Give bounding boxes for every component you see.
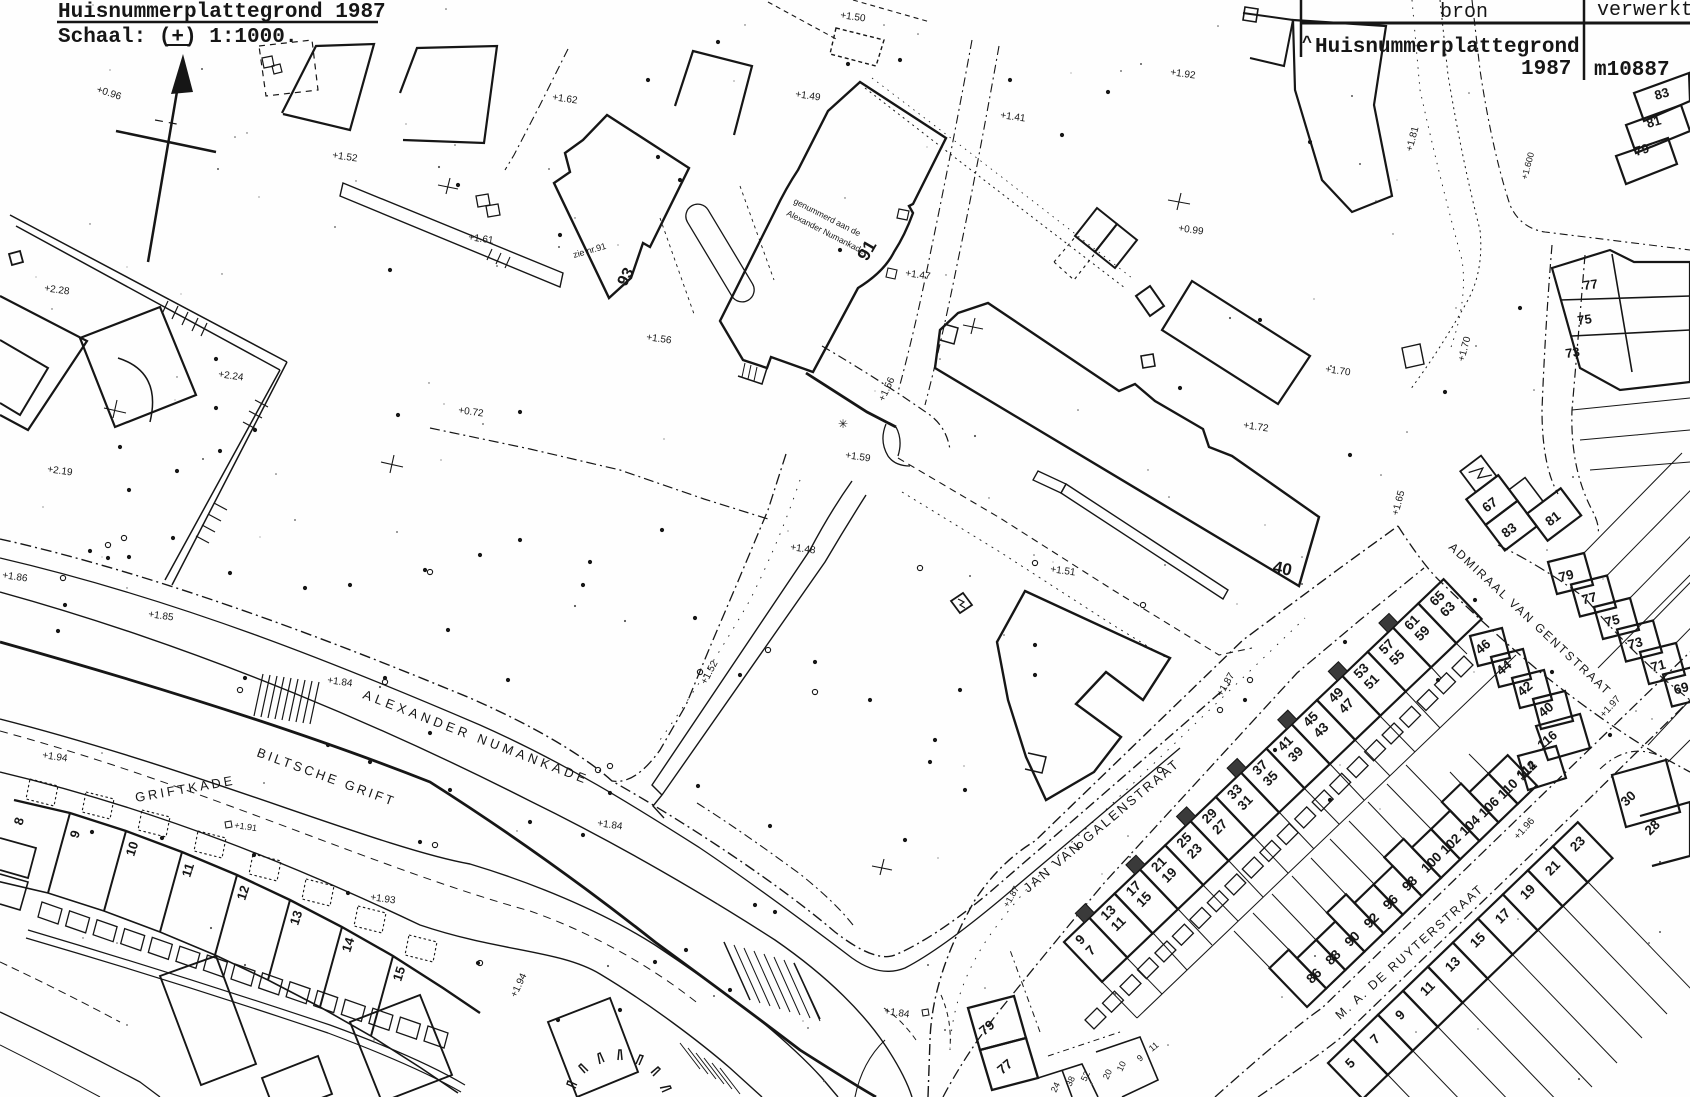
svg-text:✳: ✳ bbox=[838, 417, 848, 431]
svg-text:75: 75 bbox=[1576, 311, 1592, 328]
svg-text:73: 73 bbox=[1564, 344, 1580, 361]
svg-text:^: ^ bbox=[1302, 34, 1312, 53]
svg-text:1987: 1987 bbox=[1521, 58, 1571, 81]
svg-text:40: 40 bbox=[1271, 557, 1293, 580]
svg-text:bron: bron bbox=[1440, 1, 1488, 24]
svg-text:Huisnummerplattegrond 1987: Huisnummerplattegrond 1987 bbox=[58, 1, 386, 24]
svg-text:Huisnummerplattegrond: Huisnummerplattegrond bbox=[1315, 36, 1580, 59]
svg-text:77: 77 bbox=[1582, 276, 1598, 293]
svg-text:verwerkt: verwerkt bbox=[1597, 0, 1690, 22]
svg-text:m10887: m10887 bbox=[1594, 59, 1670, 82]
